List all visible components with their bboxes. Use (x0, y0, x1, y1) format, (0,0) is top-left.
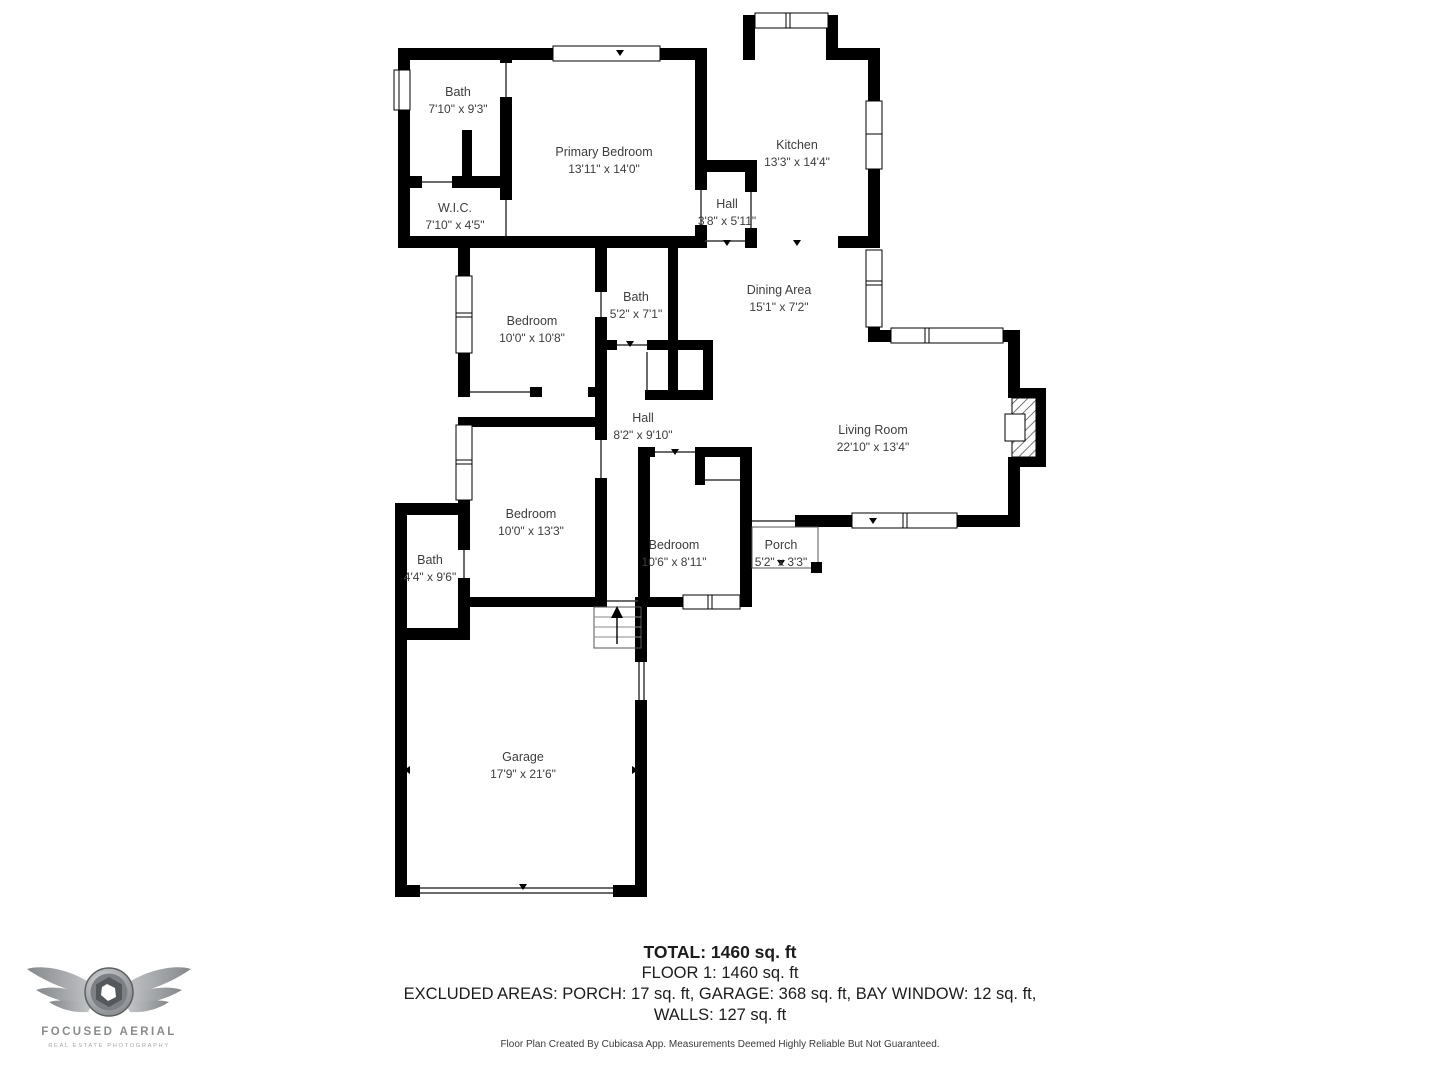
window-icon (553, 46, 660, 61)
room-label-bedroom-3: Bedroom 10'6" x 8'11" (642, 538, 707, 569)
window-icon (852, 513, 957, 528)
svg-text:Bedroom: Bedroom (649, 538, 700, 552)
svg-text:Bath: Bath (445, 85, 471, 99)
svg-text:Porch: Porch (765, 538, 798, 552)
room-label-hall-2: Hall 8'2" x 9'10" (613, 411, 672, 442)
svg-text:W.I.C.: W.I.C. (438, 201, 472, 215)
room-label-porch: Porch 5'2" x 3'3" (755, 538, 807, 569)
logo-subtitle: REAL ESTATE PHOTOGRAPHY (48, 1043, 170, 1049)
svg-text:Living Room: Living Room (838, 423, 907, 437)
room-label-dining-area: Dining Area 15'1" x 7'2" (747, 283, 812, 314)
room-label-hall-1: Hall 3'8" x 5'11" (698, 197, 756, 228)
floor-area-text: FLOOR 1: 1460 sq. ft (0, 963, 1440, 984)
room-label-kitchen: Kitchen 13'3" x 14'4" (764, 138, 830, 169)
svg-text:8'2" x 9'10": 8'2" x 9'10" (613, 428, 672, 442)
floor-plan-page: Bath 7'10" x 9'3" Primary Bedroom 13'11"… (0, 0, 1440, 1080)
excluded-areas-text: EXCLUDED AREAS: PORCH: 17 sq. ft, GARAGE… (0, 984, 1440, 1005)
stairs-icon (594, 606, 641, 648)
window-icon (866, 101, 882, 169)
svg-text:7'10" x 4'5": 7'10" x 4'5" (425, 218, 484, 232)
area-summary: TOTAL: 1460 sq. ft FLOOR 1: 1460 sq. ft … (0, 941, 1440, 1050)
svg-text:Bath: Bath (417, 553, 443, 567)
room-labels: Bath 7'10" x 9'3" Primary Bedroom 13'11"… (404, 85, 909, 781)
svg-text:17'9" x 21'6": 17'9" x 21'6" (490, 767, 556, 781)
room-label-bedroom-1: Bedroom 10'0" x 10'8" (499, 314, 565, 345)
svg-text:Kitchen: Kitchen (776, 138, 818, 152)
room-label-living-room: Living Room 22'10" x 13'4" (837, 423, 910, 454)
window-icon (866, 250, 882, 327)
focused-aerial-logo: FOCUSED AERIAL REAL ESTATE PHOTOGRAPHY (24, 960, 194, 1065)
svg-text:15'1" x 7'2": 15'1" x 7'2" (749, 300, 808, 314)
svg-text:7'10" x 9'3": 7'10" x 9'3" (428, 102, 487, 116)
svg-text:10'6" x 8'11": 10'6" x 8'11" (642, 555, 707, 569)
svg-text:Hall: Hall (716, 197, 738, 211)
svg-text:Bedroom: Bedroom (506, 507, 557, 521)
winged-camera-aperture-icon (27, 967, 191, 1016)
walls-area-text: WALLS: 127 sq. ft (0, 1005, 1440, 1026)
window-icon (456, 276, 472, 353)
svg-text:3'8" x 5'11": 3'8" x 5'11" (698, 214, 756, 228)
floor-plan-drawing: Bath 7'10" x 9'3" Primary Bedroom 13'11"… (0, 0, 1440, 1080)
room-label-bath-1: Bath 7'10" x 9'3" (428, 85, 487, 116)
disclaimer-text: Floor Plan Created By Cubicasa App. Meas… (0, 1039, 1440, 1050)
room-label-bath-3: Bath 4'4" x 9'6" (404, 553, 456, 584)
window-icon (683, 595, 740, 609)
svg-text:Primary Bedroom: Primary Bedroom (555, 145, 652, 159)
room-label-bedroom-2: Bedroom 10'0" x 13'3" (498, 507, 564, 538)
svg-text:10'0" x 10'8": 10'0" x 10'8" (499, 331, 565, 345)
svg-text:Hall: Hall (632, 411, 654, 425)
bay-window (1005, 398, 1036, 457)
window-icon (394, 70, 410, 110)
svg-text:4'4" x 9'6": 4'4" x 9'6" (404, 570, 456, 584)
svg-text:Bath: Bath (623, 290, 649, 304)
room-label-wic: W.I.C. 7'10" x 4'5" (425, 201, 484, 232)
svg-text:Garage: Garage (502, 750, 544, 764)
svg-text:5'2" x 3'3": 5'2" x 3'3" (755, 555, 807, 569)
svg-text:Bedroom: Bedroom (507, 314, 558, 328)
svg-text:13'3" x 14'4": 13'3" x 14'4" (764, 155, 830, 169)
svg-text:Dining Area: Dining Area (747, 283, 812, 297)
window-icon (755, 13, 828, 28)
svg-text:22'10" x 13'4": 22'10" x 13'4" (837, 440, 910, 454)
logo-title: FOCUSED AERIAL (41, 1026, 176, 1038)
total-area-text: TOTAL: 1460 sq. ft (0, 941, 1440, 963)
window-icon (891, 328, 1003, 343)
svg-text:10'0" x 13'3": 10'0" x 13'3" (498, 524, 564, 538)
room-label-garage: Garage 17'9" x 21'6" (490, 750, 556, 781)
room-label-bath-2: Bath 5'2" x 7'1" (610, 290, 662, 321)
svg-text:5'2" x 7'1": 5'2" x 7'1" (610, 307, 662, 321)
walls (395, 15, 1046, 897)
room-label-primary-bedroom: Primary Bedroom 13'11" x 14'0" (555, 145, 652, 176)
window-icon (456, 425, 472, 500)
svg-text:13'11" x 14'0": 13'11" x 14'0" (568, 162, 640, 176)
